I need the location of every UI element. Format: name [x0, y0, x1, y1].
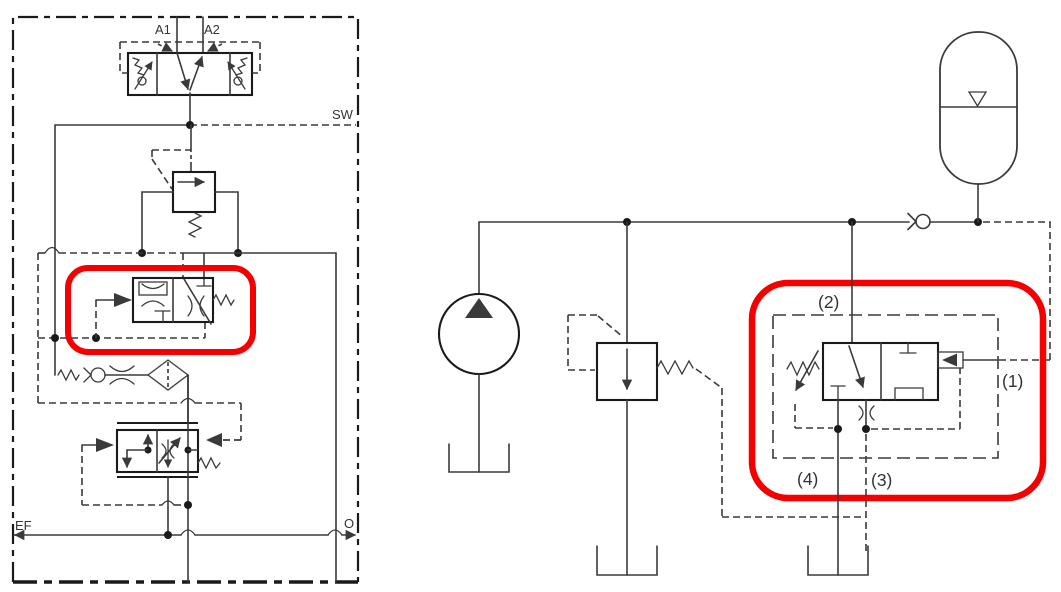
- ef-o-line: [14, 530, 355, 539]
- work-port-lines: [177, 17, 203, 53]
- shock-valve-assembly: [120, 42, 260, 125]
- label-port-a2: A2: [204, 22, 220, 37]
- label-port-o: O: [344, 516, 354, 531]
- pressure-reducing-valve: [138, 125, 242, 257]
- compensator-valve: [96, 0, 908, 338]
- check-orifice-filter: [58, 360, 188, 423]
- hydraulic-pump: [439, 222, 519, 472]
- hydraulic-diagram-svg: A1 A2 SW EF O: [0, 0, 1061, 592]
- label-port-a1: A1: [155, 22, 171, 37]
- pilot-line-network: [38, 248, 336, 583]
- relief-valve: [568, 222, 866, 575]
- label-port-4: (4): [797, 469, 818, 489]
- label-port-1: (1): [1002, 371, 1023, 391]
- label-port-2: (2): [818, 292, 839, 312]
- adjustable-spring: [787, 362, 819, 375]
- flow-regulator-valve: [82, 375, 241, 582]
- label-port-sw: SW: [332, 107, 354, 122]
- label-port-ef: EF: [15, 518, 32, 533]
- label-port-3: (3): [871, 470, 892, 490]
- valve-envelope: [773, 315, 998, 458]
- accumulator: [940, 32, 1017, 222]
- right-circuit: (1) (2) (3) (4): [439, 32, 1050, 575]
- block-boundary: [13, 17, 358, 582]
- unloading-valve: [787, 222, 998, 575]
- check-valve: [908, 214, 930, 230]
- figure-canvas: A1 A2 SW EF O: [0, 0, 1061, 592]
